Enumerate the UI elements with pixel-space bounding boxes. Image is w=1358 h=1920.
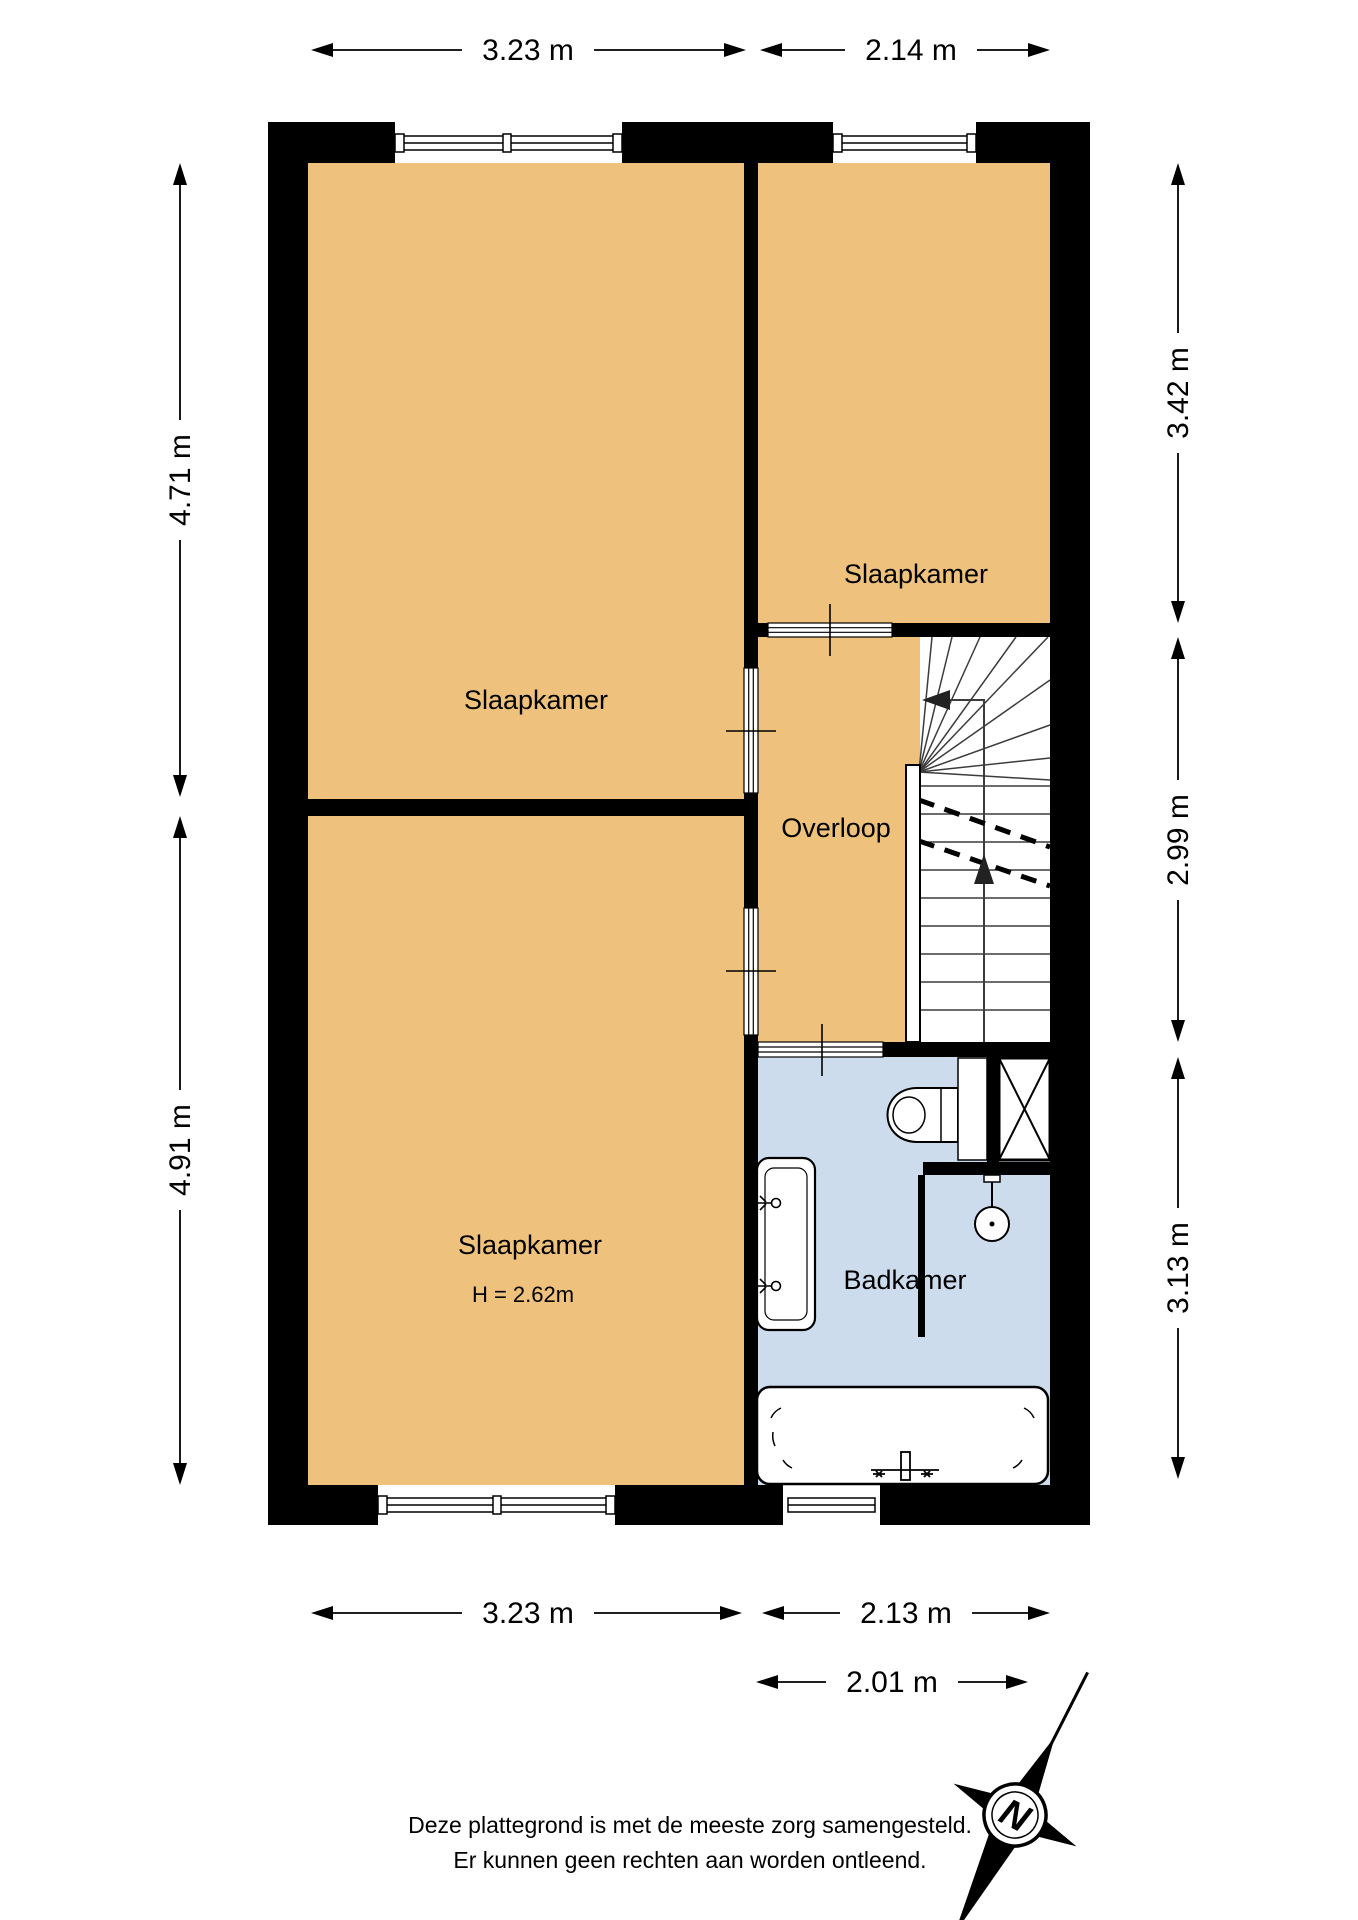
dimension-label: 2.13 m xyxy=(860,1597,952,1630)
wall xyxy=(615,1485,783,1525)
wall xyxy=(976,122,1090,163)
room-label-bedroom-bottom-left: Slaapkamer xyxy=(458,1230,602,1260)
vanity-sink xyxy=(757,1158,815,1330)
wall xyxy=(987,1057,999,1175)
window-bathroom xyxy=(783,1485,880,1525)
wall xyxy=(880,1485,1090,1525)
wall xyxy=(622,122,833,163)
bathtub xyxy=(757,1387,1048,1484)
stair-handrail xyxy=(906,765,920,1042)
wall xyxy=(918,1175,925,1337)
floorplan-drawing: Slaapkamer Slaapkamer Overloop Slaapkame… xyxy=(0,0,1358,1920)
wall xyxy=(268,1485,378,1525)
wall xyxy=(744,163,758,668)
toilet xyxy=(888,1088,959,1142)
dimension-label: 2.14 m xyxy=(865,34,957,67)
dimension-label: 4.91 m xyxy=(164,1104,197,1196)
dimension-label: 3.23 m xyxy=(482,34,574,67)
wall xyxy=(268,799,744,816)
wall xyxy=(1050,122,1090,1525)
dimension-label: 3.13 m xyxy=(1162,1222,1195,1314)
room-bedroom-top-right xyxy=(758,163,1050,623)
wall xyxy=(268,122,395,163)
wall xyxy=(892,623,1090,637)
floorplan-page: Slaapkamer Slaapkamer Overloop Slaapkame… xyxy=(0,0,1358,1920)
window-top-right xyxy=(833,122,976,163)
wall xyxy=(744,793,758,908)
disclaimer-line-1: Deze plattegrond is met de meeste zorg s… xyxy=(408,1812,972,1838)
room-label-bedroom-top-left: Slaapkamer xyxy=(464,685,608,715)
toilet-panel xyxy=(958,1058,987,1160)
dimension-label: 3.42 m xyxy=(1162,347,1195,439)
room-label-bedroom-top-right: Slaapkamer xyxy=(844,559,988,589)
dimension-label: 2.01 m xyxy=(846,1666,938,1699)
dimension-label: 4.71 m xyxy=(164,434,197,526)
window-top-left xyxy=(395,122,622,163)
room-label-bathroom: Badkamer xyxy=(843,1265,966,1295)
shaft xyxy=(999,1058,1050,1160)
room-bedroom-bottom-left xyxy=(308,816,744,1485)
dimension-label: 3.23 m xyxy=(482,1597,574,1630)
room-ceiling-height-label: H = 2.62m xyxy=(472,1282,574,1307)
wall xyxy=(883,1042,1090,1057)
dimension-label: 2.99 m xyxy=(1162,794,1195,886)
disclaimer-text: Deze plattegrond is met de meeste zorg s… xyxy=(408,1812,972,1873)
window-bottom-left xyxy=(378,1485,615,1525)
room-label-landing: Overloop xyxy=(781,813,891,843)
wall xyxy=(923,1162,1050,1175)
wall xyxy=(744,623,768,637)
disclaimer-line-2: Er kunnen geen rechten aan worden ontlee… xyxy=(453,1847,926,1873)
wall xyxy=(268,122,308,1525)
